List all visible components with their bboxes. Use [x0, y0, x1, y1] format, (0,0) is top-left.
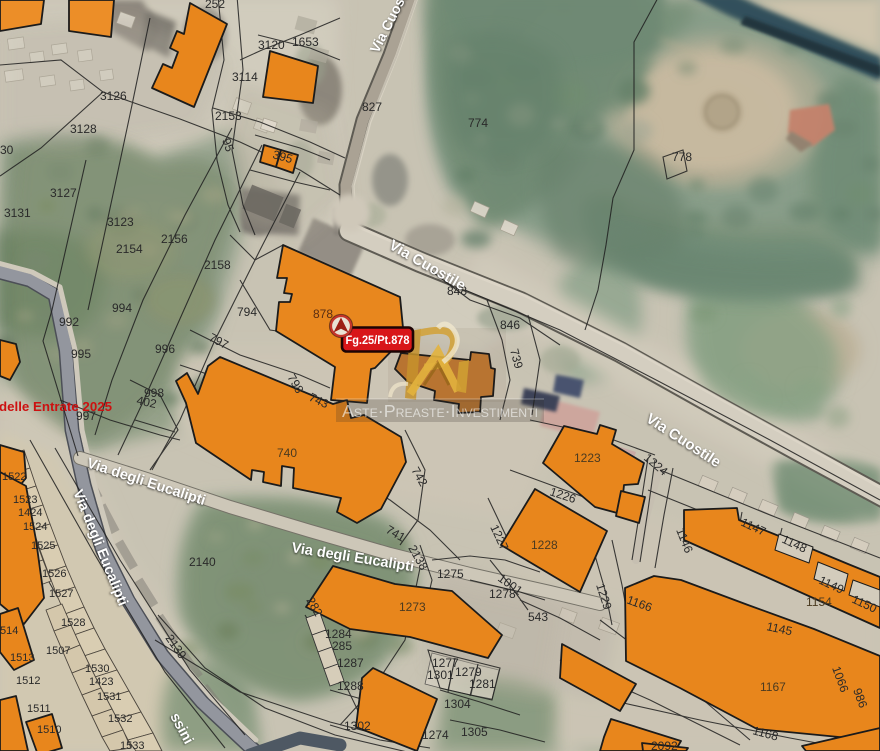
svg-text:740: 740: [277, 446, 297, 460]
svg-text:995: 995: [71, 347, 91, 361]
svg-text:1281: 1281: [469, 677, 496, 691]
svg-text:285: 285: [332, 639, 352, 653]
svg-text:30: 30: [0, 143, 14, 157]
svg-text:2153: 2153: [215, 109, 242, 123]
svg-text:514: 514: [0, 625, 18, 637]
svg-text:1424: 1424: [18, 507, 42, 519]
svg-text:1301: 1301: [427, 668, 454, 682]
svg-text:778: 778: [672, 150, 692, 164]
svg-text:1513: 1513: [10, 652, 34, 664]
svg-text:1526: 1526: [42, 568, 66, 580]
svg-text:1275: 1275: [437, 567, 464, 581]
svg-text:1287: 1287: [337, 656, 364, 670]
svg-text:3114: 3114: [232, 70, 258, 84]
svg-text:1524: 1524: [23, 521, 47, 533]
svg-text:3128: 3128: [70, 122, 97, 136]
svg-text:252: 252: [205, 0, 225, 11]
svg-text:774: 774: [468, 116, 488, 130]
svg-text:827: 827: [362, 100, 382, 114]
svg-text:1507: 1507: [46, 645, 70, 657]
svg-text:1527: 1527: [49, 588, 73, 600]
svg-text:1510: 1510: [37, 724, 61, 736]
svg-text:1423: 1423: [89, 676, 113, 688]
svg-text:2140: 2140: [189, 555, 216, 569]
svg-text:3126: 3126: [100, 89, 127, 103]
svg-text:1223: 1223: [574, 451, 601, 465]
svg-text:1533: 1533: [120, 740, 144, 751]
svg-text:1167: 1167: [760, 680, 786, 694]
svg-text:1228: 1228: [531, 538, 558, 552]
svg-text:1653: 1653: [292, 35, 319, 49]
svg-text:1278: 1278: [489, 587, 516, 601]
svg-text:878: 878: [313, 307, 333, 321]
svg-text:delle Entrate 2025: delle Entrate 2025: [0, 399, 112, 414]
svg-text:794: 794: [237, 305, 257, 319]
svg-text:3131: 3131: [4, 206, 31, 220]
svg-text:Fg.25/Pt.878: Fg.25/Pt.878: [346, 333, 410, 347]
svg-text:2092: 2092: [651, 739, 678, 751]
svg-text:1302: 1302: [344, 719, 371, 733]
svg-text:1523: 1523: [13, 494, 37, 506]
svg-text:992: 992: [59, 315, 79, 329]
svg-text:1530: 1530: [85, 663, 109, 675]
svg-text:1528: 1528: [61, 617, 85, 629]
svg-text:1154: 1154: [806, 595, 832, 609]
svg-text:1532: 1532: [108, 713, 132, 725]
svg-text:1512: 1512: [16, 675, 40, 687]
svg-text:2154: 2154: [116, 242, 143, 256]
svg-text:994: 994: [112, 301, 132, 315]
svg-text:1522: 1522: [2, 471, 26, 483]
svg-text:3123: 3123: [107, 215, 134, 229]
svg-text:Aste·Preaste·Investimenti: Aste·Preaste·Investimenti: [342, 401, 538, 421]
svg-text:2158: 2158: [204, 258, 231, 272]
svg-text:1304: 1304: [444, 697, 471, 711]
svg-text:2156: 2156: [161, 232, 188, 246]
svg-text:1273: 1273: [399, 600, 426, 614]
svg-text:3120: 3120: [258, 38, 285, 52]
svg-text:1531: 1531: [97, 691, 121, 703]
svg-text:1525: 1525: [31, 540, 55, 552]
svg-text:3127: 3127: [50, 186, 77, 200]
svg-text:1511: 1511: [27, 703, 51, 715]
svg-text:543: 543: [528, 610, 548, 624]
svg-text:1274: 1274: [422, 728, 449, 742]
svg-text:1305: 1305: [461, 725, 488, 739]
svg-text:1288: 1288: [337, 679, 364, 693]
svg-text:996: 996: [155, 342, 175, 356]
